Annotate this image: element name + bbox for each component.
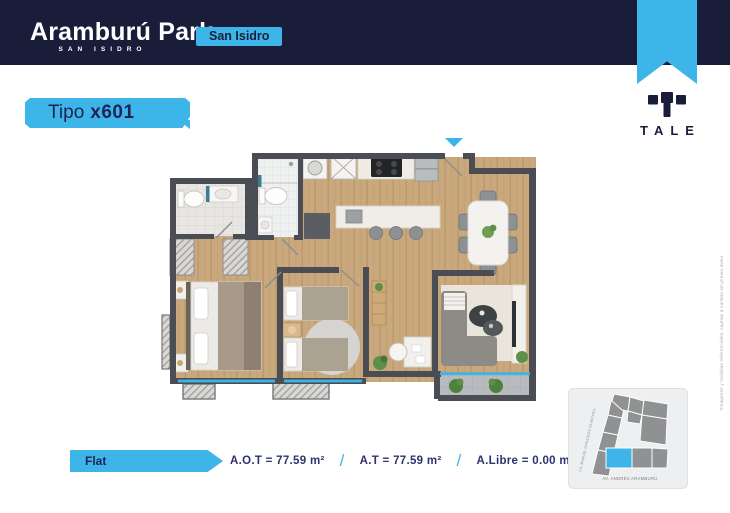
location-map: CA. MANUEL GONZÁLES OLAECHEA AV. ANDRÉS … [568, 388, 688, 489]
entry-arrow-icon [445, 138, 463, 147]
spec-aot: A.O.T = 77.59 m² [230, 455, 325, 467]
spec-separator: / [340, 451, 345, 471]
spec-libre: A.Libre = 0.00 m² [477, 455, 574, 467]
unit-type-code: x601 [90, 102, 134, 123]
unit-type-label: Tipo [48, 102, 84, 123]
tale-logo-icon [647, 92, 687, 118]
unit-type-box: Tipox601 [25, 98, 190, 128]
unit-category-banner: Flat [70, 450, 223, 472]
area-specs: A.O.T = 77.59 m² / A.T = 77.59 m² / A.Li… [230, 450, 574, 472]
disclaimer-text: *Imágenes y medidas referenciales, sujet… [719, 256, 724, 411]
spec-separator: / [457, 451, 462, 471]
project-subtitle: SAN ISIDRO [30, 46, 175, 53]
spec-at: A.T = 77.59 m² [360, 455, 442, 467]
unit-category-label: Flat [85, 454, 106, 468]
living-room [441, 285, 528, 366]
brand-logo: TALE [632, 92, 702, 138]
map-street-bottom-label: AV. ANDRÉS ARAMBURÚ [602, 476, 657, 481]
district-badge: San Isidro [196, 27, 282, 46]
header-band: Aramburú Park SAN ISIDRO San Isidro [0, 0, 730, 65]
bookmark-ribbon-icon [637, 0, 697, 84]
brochure-sheet: Aramburú Park SAN ISIDRO San Isidro TALE… [0, 0, 730, 513]
brand-logo-text: TALE [636, 123, 706, 138]
floor-plan [160, 135, 570, 407]
map-highlight-lot [606, 448, 632, 468]
project-title: Aramburú Park [30, 18, 180, 47]
